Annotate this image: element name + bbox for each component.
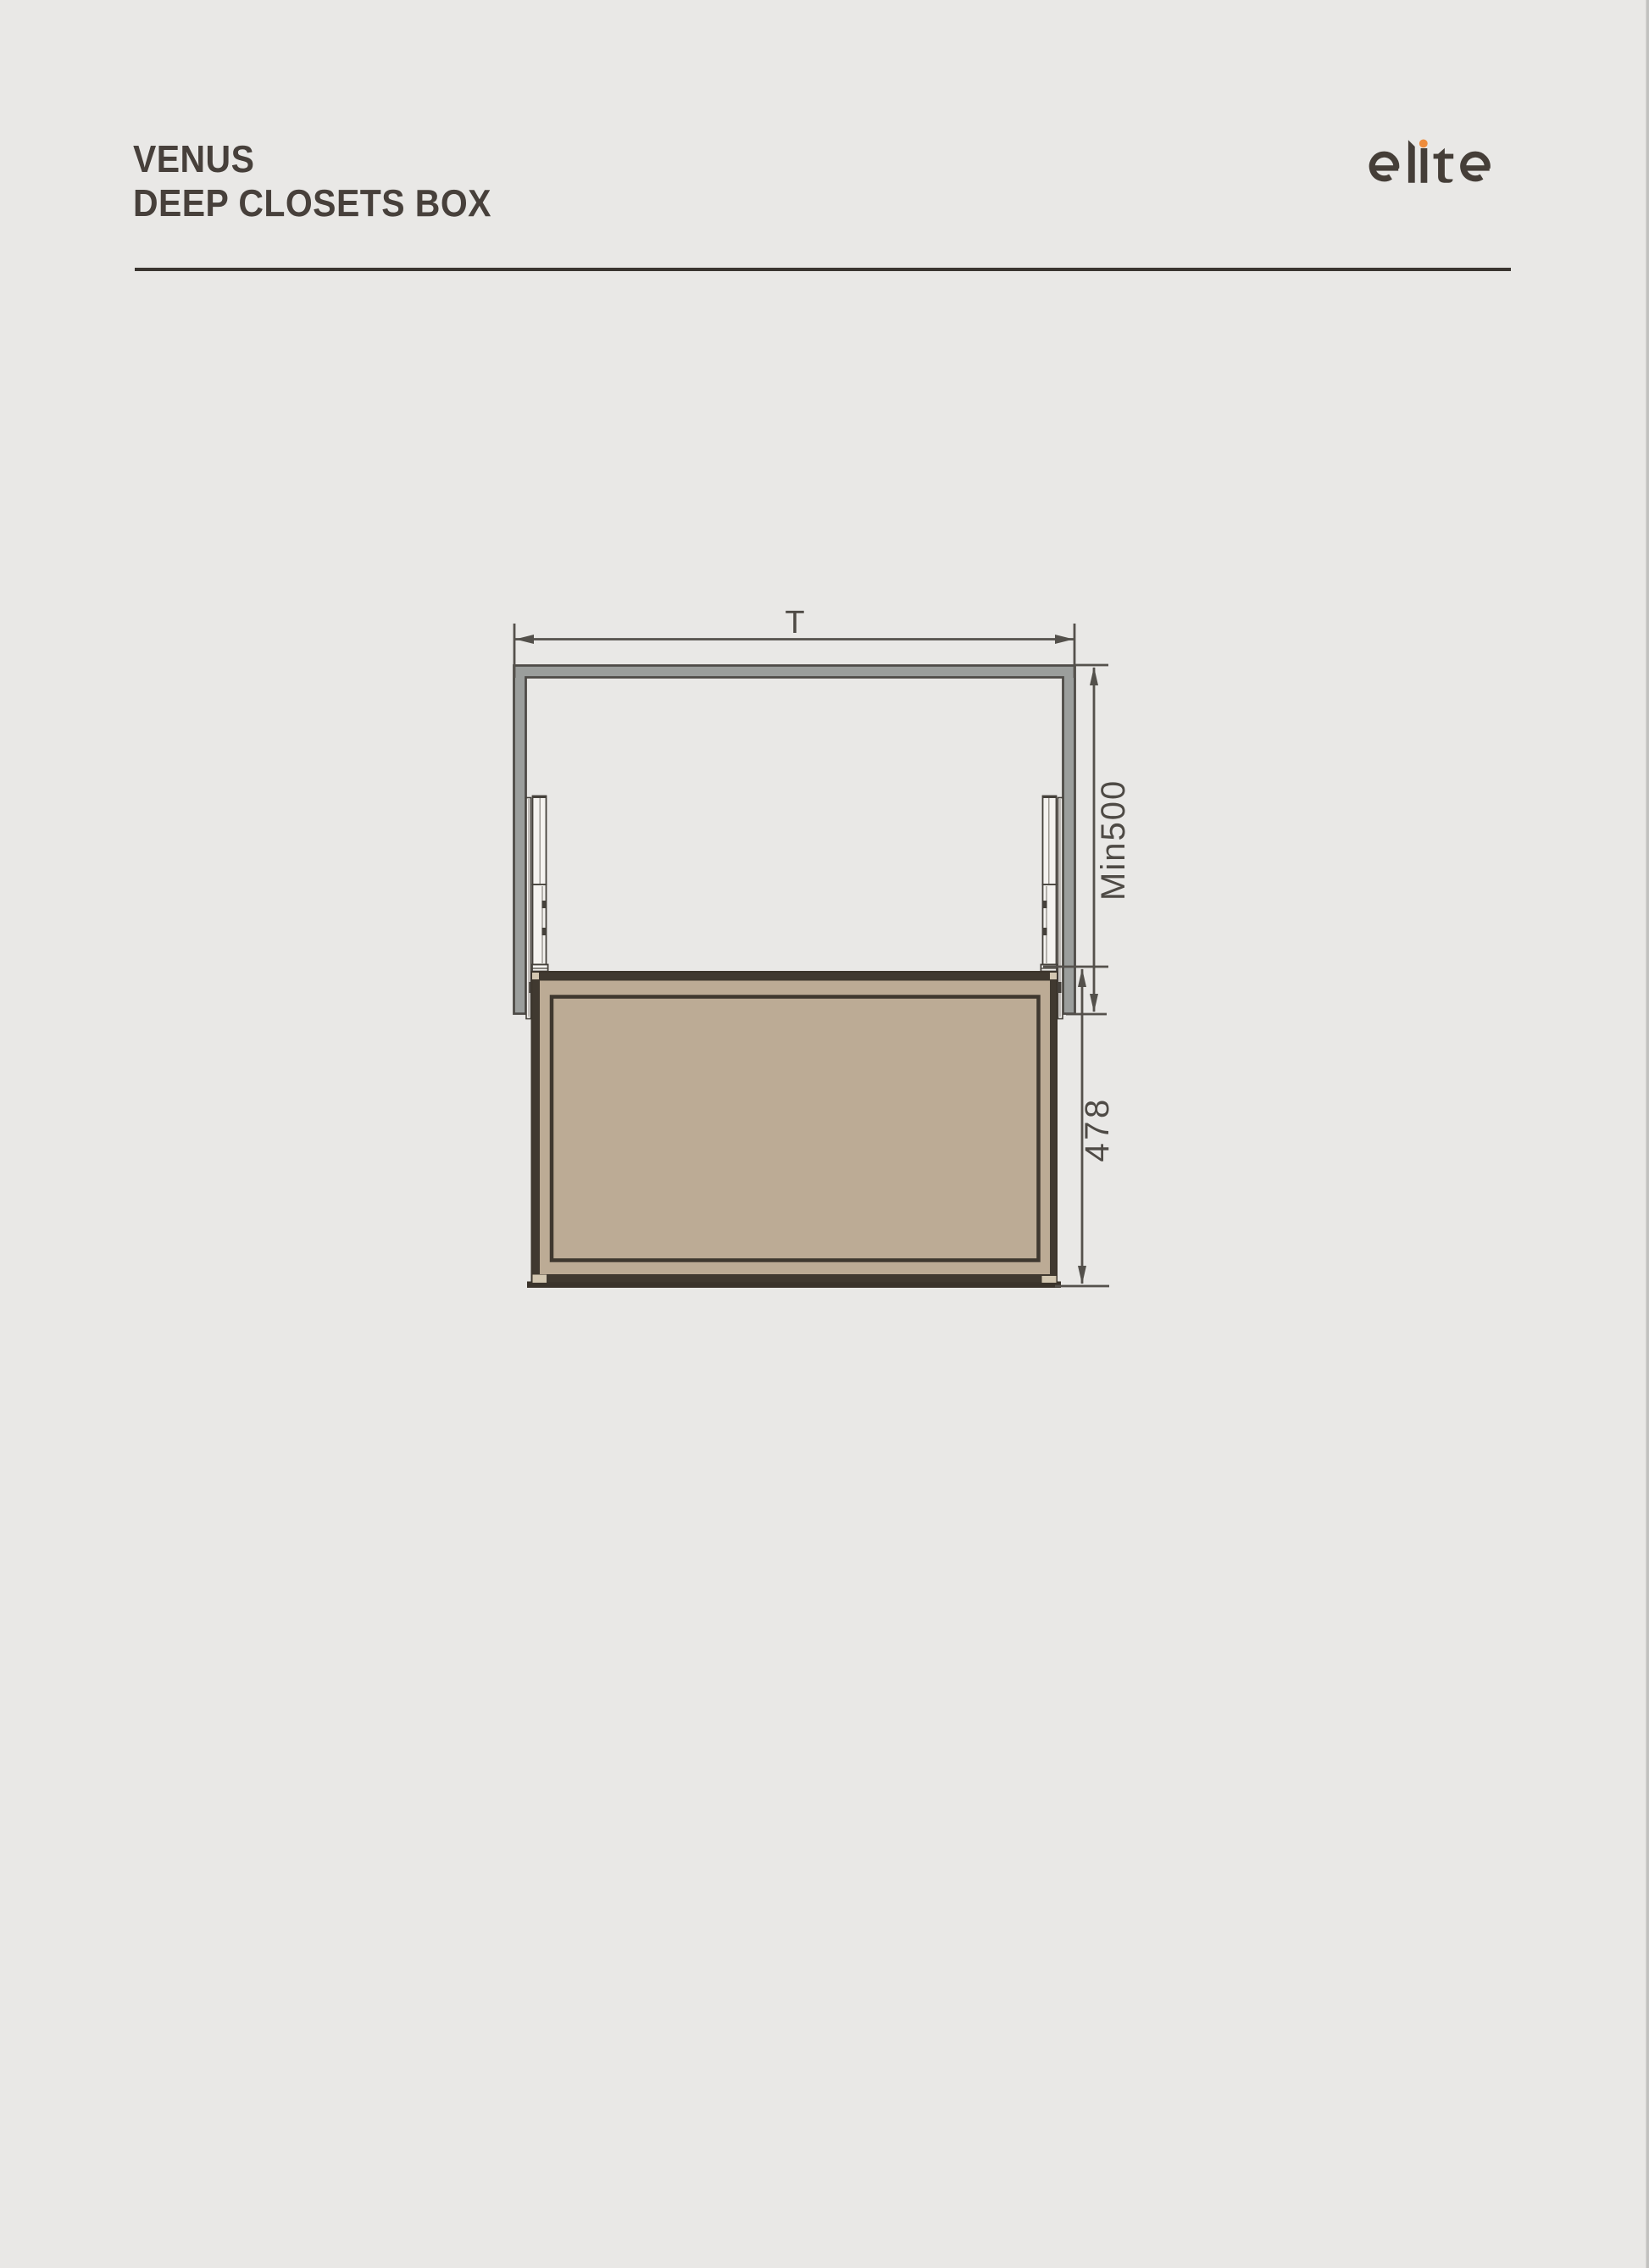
- svg-text:478: 478: [1079, 1096, 1116, 1162]
- svg-text:T: T: [785, 605, 804, 640]
- svg-text:Min500: Min500: [1095, 779, 1132, 901]
